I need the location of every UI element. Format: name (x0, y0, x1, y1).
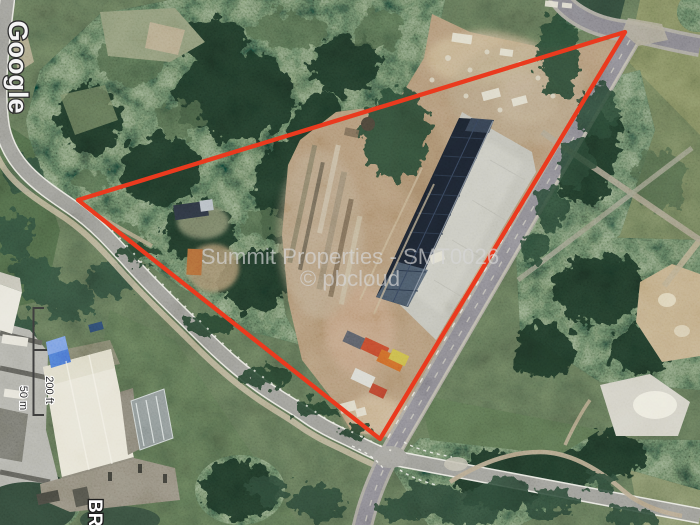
svg-text:Google: Google (3, 21, 33, 114)
svg-text:50 m: 50 m (17, 386, 29, 410)
svg-text:© pbcloud: © pbcloud (300, 266, 400, 291)
svg-text:BRD: BRD (84, 499, 105, 525)
svg-text:200 ft: 200 ft (43, 376, 55, 404)
